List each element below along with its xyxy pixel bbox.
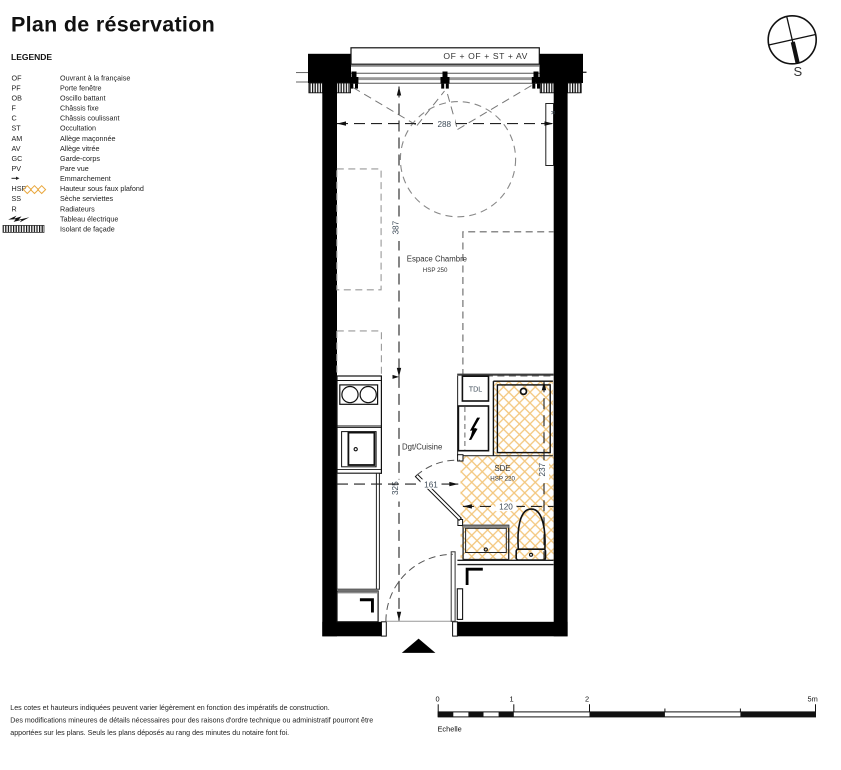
- svg-text:OF + OF + ST + AV: OF + OF + ST + AV: [443, 51, 528, 61]
- svg-text:Allège maçonnée: Allège maçonnée: [60, 134, 116, 143]
- svg-text:R: R: [12, 204, 17, 213]
- svg-text:0: 0: [436, 695, 440, 704]
- svg-text:S: S: [794, 64, 803, 79]
- svg-text:GC: GC: [12, 154, 23, 163]
- svg-text:HSP 220: HSP 220: [490, 475, 515, 482]
- svg-text:Porte fenêtre: Porte fenêtre: [60, 83, 102, 92]
- svg-text:5m: 5m: [808, 695, 818, 704]
- svg-text:2: 2: [585, 695, 589, 704]
- svg-text:Emmarchement: Emmarchement: [60, 174, 111, 183]
- svg-text:Allège vitrée: Allège vitrée: [60, 144, 100, 153]
- svg-text:Hauteur sous faux plafond: Hauteur sous faux plafond: [60, 184, 144, 193]
- svg-text:PV: PV: [12, 164, 22, 173]
- svg-text:AM: AM: [12, 134, 23, 143]
- svg-text:TDL: TDL: [469, 385, 483, 394]
- svg-text:ST: ST: [12, 124, 22, 133]
- svg-text:apportées sur les plans. Seuls: apportées sur les plans. Seuls les plans…: [10, 729, 289, 737]
- svg-text:Isolant de façade: Isolant de façade: [60, 224, 115, 233]
- svg-text:Echelle: Echelle: [438, 725, 462, 734]
- svg-text:OF: OF: [12, 73, 23, 82]
- svg-text:F: F: [12, 104, 17, 113]
- svg-text:Sèche serviettes: Sèche serviettes: [60, 194, 114, 203]
- svg-text:1: 1: [510, 695, 514, 704]
- svg-text:Ouvrant à la française: Ouvrant à la française: [60, 73, 130, 82]
- svg-text:Espace Chambre: Espace Chambre: [407, 255, 467, 264]
- svg-text:OB: OB: [12, 94, 23, 103]
- svg-text:SDE: SDE: [494, 464, 510, 473]
- svg-text:LEGENDE: LEGENDE: [11, 52, 52, 62]
- svg-text:288: 288: [437, 120, 451, 129]
- svg-text:SS: SS: [12, 194, 22, 203]
- svg-text:161: 161: [424, 480, 438, 489]
- svg-text:R: R: [549, 111, 555, 115]
- svg-text:Radiateurs: Radiateurs: [60, 204, 95, 213]
- svg-text:AV: AV: [12, 144, 21, 153]
- svg-text:325: 325: [391, 481, 400, 495]
- svg-text:Tableau électrique: Tableau électrique: [60, 214, 118, 223]
- svg-text:387: 387: [392, 220, 401, 234]
- svg-text:Oscillo battant: Oscillo battant: [60, 94, 106, 103]
- svg-text:Garde-corps: Garde-corps: [60, 154, 100, 163]
- svg-text:PF: PF: [12, 83, 22, 92]
- svg-text:HSP 250: HSP 250: [423, 267, 448, 274]
- svg-text:237: 237: [538, 462, 547, 476]
- svg-text:Plan de réservation: Plan de réservation: [11, 12, 215, 36]
- svg-text:Châssis coulissant: Châssis coulissant: [60, 114, 120, 123]
- svg-text:Pare vue: Pare vue: [60, 164, 89, 173]
- svg-text:120: 120: [499, 503, 513, 512]
- svg-text:Châssis fixe: Châssis fixe: [60, 104, 99, 113]
- svg-text:C: C: [12, 114, 17, 123]
- svg-text:Occultation: Occultation: [60, 124, 96, 133]
- svg-text:Les cotes et hauteurs indiquée: Les cotes et hauteurs indiquées peuvent …: [10, 704, 329, 712]
- svg-text:Dgt/Cuisine: Dgt/Cuisine: [402, 442, 442, 451]
- svg-text:Des modifications mineures de: Des modifications mineures de détails né…: [10, 717, 373, 725]
